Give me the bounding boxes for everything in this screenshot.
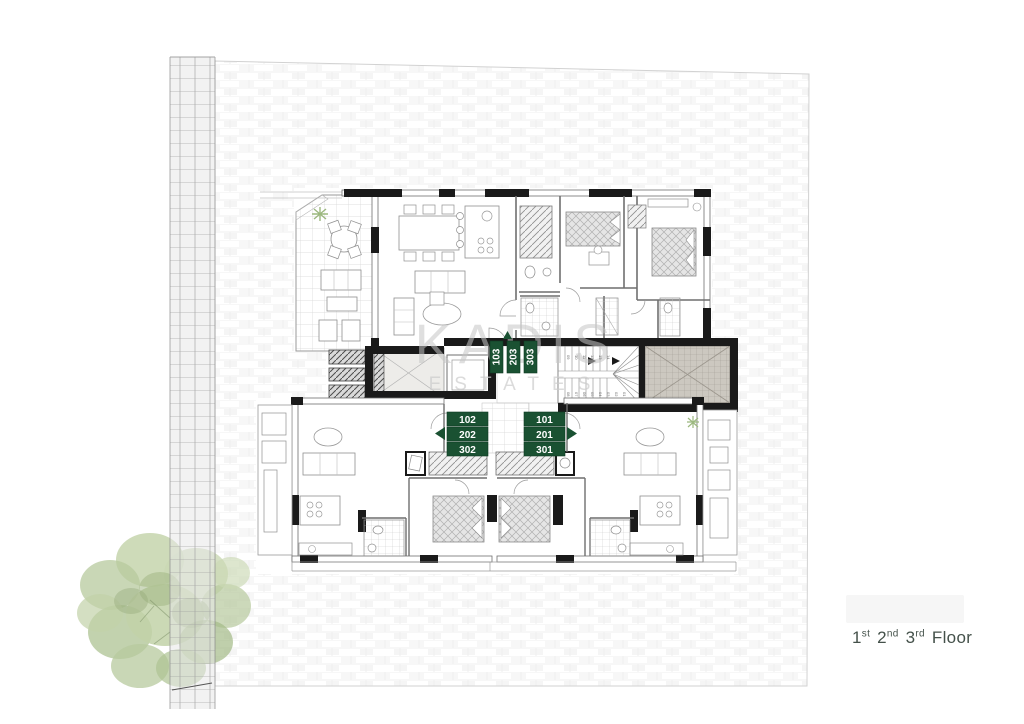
bed xyxy=(566,212,620,246)
floor-label: 1st2nd3rdFloor xyxy=(852,628,1022,648)
svg-text:09: 09 xyxy=(566,355,571,360)
faint-artifact xyxy=(846,595,964,623)
floor-3: 3rd xyxy=(906,628,925,647)
floor-1: 1st xyxy=(852,628,870,647)
plant-icon xyxy=(312,207,328,221)
floor-word: Floor xyxy=(932,628,972,647)
svg-text:14: 14 xyxy=(606,355,611,360)
unit-badge: 301 xyxy=(536,445,553,456)
unit-badge: 302 xyxy=(459,445,476,456)
svg-text:01: 01 xyxy=(622,392,627,397)
floor-2: 2nd xyxy=(877,628,899,647)
svg-text:13: 13 xyxy=(598,355,603,360)
svg-text:02: 02 xyxy=(614,392,619,397)
svg-text:05: 05 xyxy=(590,392,595,397)
kitchen-counter xyxy=(465,206,499,258)
svg-text:06: 06 xyxy=(582,392,587,397)
svg-text:10: 10 xyxy=(574,355,579,360)
site-plan-drawing: KADIS ESTATES 09 10 11 12 13 14 08 07 06… xyxy=(0,0,1024,724)
unit-badge: 203 xyxy=(509,348,520,365)
svg-text:08: 08 xyxy=(566,392,571,397)
svg-text:12: 12 xyxy=(590,355,595,360)
floor-plan-page: KADIS ESTATES 09 10 11 12 13 14 08 07 06… xyxy=(0,0,1024,724)
kitchen-island xyxy=(640,496,680,525)
unit-badge: 102 xyxy=(459,415,476,426)
unit-badge: 201 xyxy=(536,430,553,441)
terrace-top-left xyxy=(296,195,375,351)
bed xyxy=(652,228,696,276)
unit-badge: 101 xyxy=(536,415,553,426)
balcony-lower-left xyxy=(258,405,292,555)
bed xyxy=(499,496,550,542)
svg-text:03: 03 xyxy=(606,392,611,397)
kitchen-island xyxy=(300,496,340,525)
unit-badge: 103 xyxy=(492,348,503,365)
unit-badge: 303 xyxy=(526,348,537,365)
svg-text:04: 04 xyxy=(598,392,603,397)
pavement-strip xyxy=(170,57,215,709)
elevator xyxy=(645,346,730,403)
bed xyxy=(433,496,484,542)
svg-text:07: 07 xyxy=(574,392,579,397)
unit-badge: 202 xyxy=(459,430,476,441)
